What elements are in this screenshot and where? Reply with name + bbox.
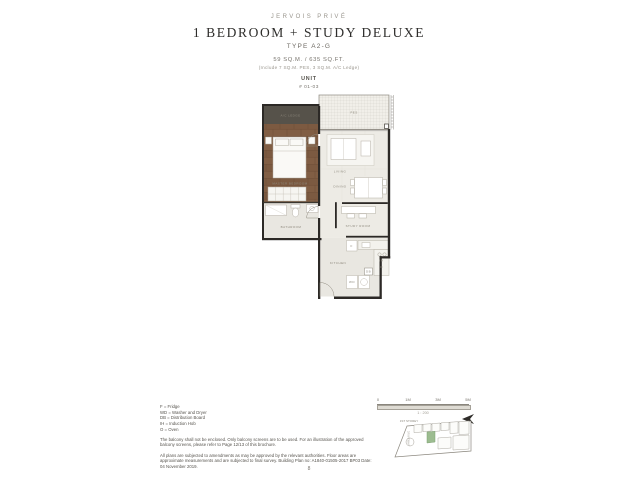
dining-label: DINING — [333, 185, 346, 189]
master-bedroom-label: MASTER BEDROOM — [272, 182, 307, 186]
living-label: LIVING — [334, 170, 347, 174]
oven-label: O — [380, 265, 383, 269]
floor-plan: A/C LEDGE PES MASTER BEDROOM BATHROOM LI… — [262, 94, 394, 313]
scale-tick-label: 3M — [435, 397, 441, 402]
induction-hob-label: IH — [380, 259, 384, 263]
scale-tick-label: 0 — [377, 397, 379, 402]
study-room-label: STUDY ROOM — [346, 224, 371, 228]
dining-chair — [351, 180, 355, 186]
highlighted-unit — [427, 431, 435, 443]
unit-area-note: (Include 7 SQ.M. PES, 3 SQ.M. A/C Ledge) — [0, 65, 618, 70]
desk — [342, 207, 376, 214]
sink — [362, 243, 370, 248]
pillow — [276, 139, 289, 146]
pillow — [290, 139, 303, 146]
kitchen-label: KITCHEN — [330, 261, 346, 265]
page-number: 8 — [0, 466, 618, 472]
washer-dryer-label: WD — [349, 280, 355, 284]
appliance-legend: F = Fridge WD = Washer and Dryer DB = Di… — [160, 404, 207, 433]
balcony-disclaimer: The balcony shall not be enclosed. Only … — [160, 437, 376, 448]
brand-name: JERVOIS PRIVÉ — [0, 14, 618, 20]
coffee-table — [361, 141, 371, 156]
ac-ledge-trellis — [391, 95, 393, 130]
ac-ledge-label: A/C LEDGE — [280, 114, 300, 118]
storey-label: 1ST STOREY — [400, 419, 419, 423]
unit-number: # 01-03 — [0, 85, 618, 90]
bathroom-label: BATHROOM — [281, 225, 302, 229]
scale-tick-label: 5M — [465, 397, 471, 402]
distribution-board-label: DB — [366, 270, 371, 274]
brochure-page: JERVOIS PRIVÉ 1 BEDROOM + STUDY DELUXE T… — [0, 0, 640, 480]
dining-chair — [351, 188, 355, 194]
unit-type-label: TYPE A2-G — [0, 43, 618, 50]
column — [385, 124, 389, 129]
unit-heading: UNIT — [0, 76, 618, 82]
page-title: 1 BEDROOM + STUDY DELUXE — [0, 25, 618, 41]
road-label: DRIVEWAY — [407, 431, 410, 446]
dining-chair — [383, 180, 387, 186]
scale-tick-label: 1M — [405, 397, 411, 402]
unit-area: 59 SQ.M. / 635 SQ.FT. — [0, 57, 618, 63]
legend-item: O = Oven — [160, 427, 207, 433]
toilet — [292, 208, 298, 217]
scale-band — [377, 405, 471, 410]
desk-chair — [359, 214, 367, 218]
dining-chair — [383, 188, 387, 194]
side-table — [266, 137, 272, 144]
fridge-label: F — [351, 244, 353, 248]
appliance-unit — [359, 276, 370, 289]
pes-label: PES — [350, 111, 357, 115]
desk-chair — [347, 214, 355, 218]
toilet-tank — [291, 205, 300, 209]
